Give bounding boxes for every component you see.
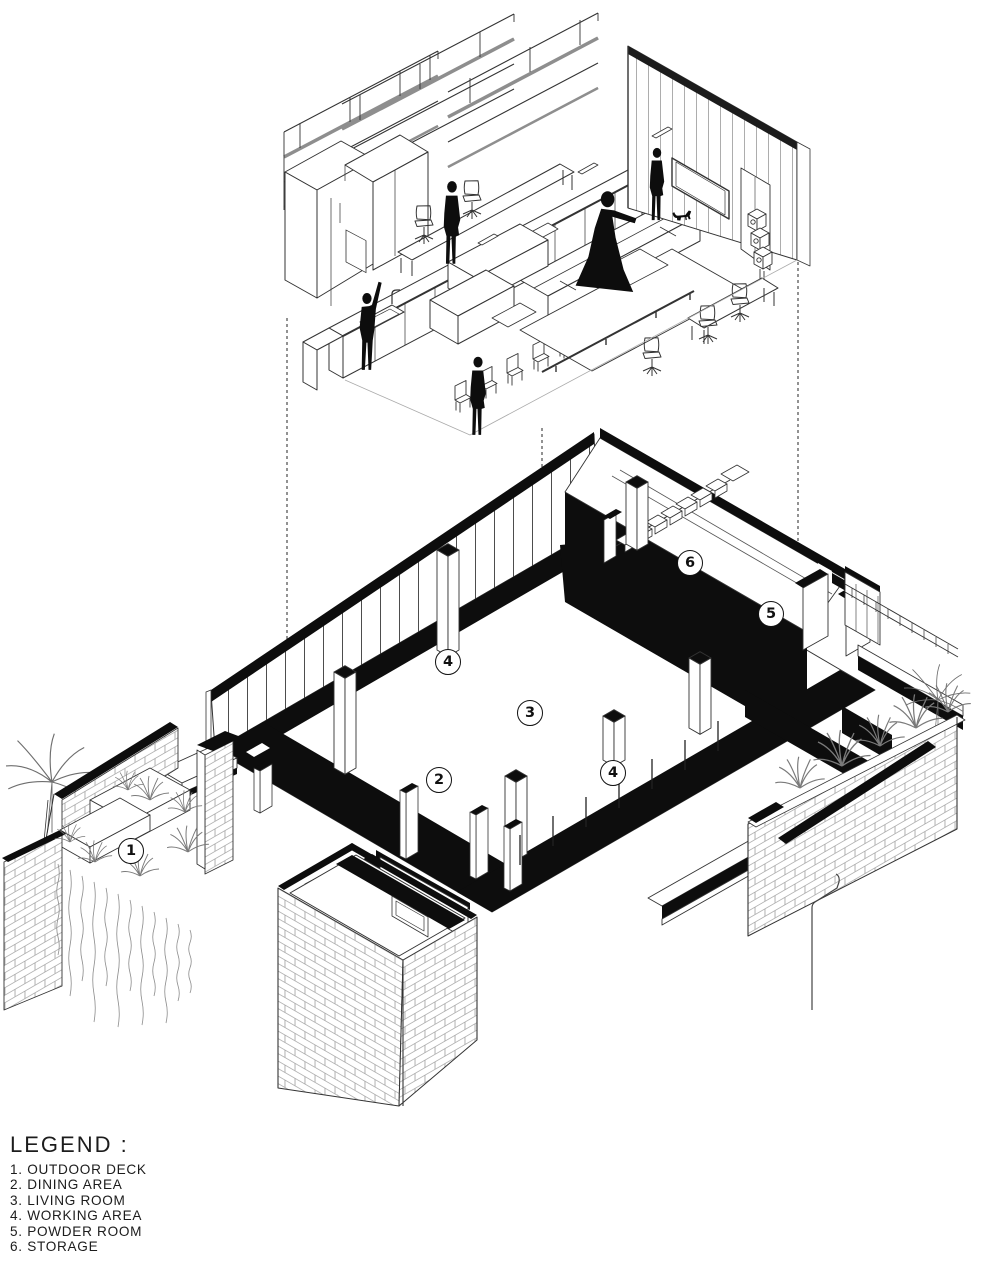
callout-4b: 4 (600, 760, 626, 786)
legend: LEGEND : 1. OUTDOOR DECK 2. DINING AREA … (10, 1132, 147, 1254)
legend-item: 5. POWDER ROOM (10, 1224, 147, 1239)
upper-furniture-layer (284, 13, 810, 435)
legend-item: 4. WORKING AREA (10, 1208, 147, 1223)
axonometric-diagram-page: 1 2 3 4 4 5 6 LEGEND : 1. OUTDOOR DECK 2… (0, 0, 1000, 1265)
callout-2: 2 (426, 767, 452, 793)
hanging-vines (57, 864, 192, 1027)
callout-number: 3 (525, 706, 535, 721)
office-chair-icon (463, 181, 481, 219)
callout-1: 1 (118, 838, 144, 864)
legend-item: 3. LIVING ROOM (10, 1193, 147, 1208)
wardrobe-cabinets (285, 135, 428, 306)
column (334, 666, 356, 775)
legend-title: LEGEND : (10, 1132, 147, 1158)
callout-5: 5 (758, 601, 784, 627)
outdoor-deck (2, 722, 241, 1027)
column (437, 544, 459, 657)
callout-number: 6 (685, 556, 695, 571)
callout-6: 6 (677, 550, 703, 576)
figure-person-desk (444, 181, 461, 264)
callout-number: 4 (443, 655, 453, 670)
callout-number: 1 (126, 844, 136, 859)
legend-item: 6. STORAGE (10, 1239, 147, 1254)
figure-person-kitchen (470, 357, 486, 435)
legend-list: 1. OUTDOOR DECK 2. DINING AREA 3. LIVING… (10, 1162, 147, 1254)
column (689, 652, 711, 735)
column (603, 710, 625, 767)
office-chair-icon (643, 338, 661, 376)
callout-number: 4 (608, 766, 618, 781)
callout-number: 2 (434, 773, 444, 788)
legend-item: 2. DINING AREA (10, 1177, 147, 1192)
legend-item: 1. OUTDOOR DECK (10, 1162, 147, 1177)
axonometric-drawing (0, 0, 1000, 1265)
callout-4a: 4 (435, 649, 461, 675)
callout-3: 3 (517, 700, 543, 726)
callout-number: 5 (766, 607, 776, 622)
column (626, 476, 648, 551)
